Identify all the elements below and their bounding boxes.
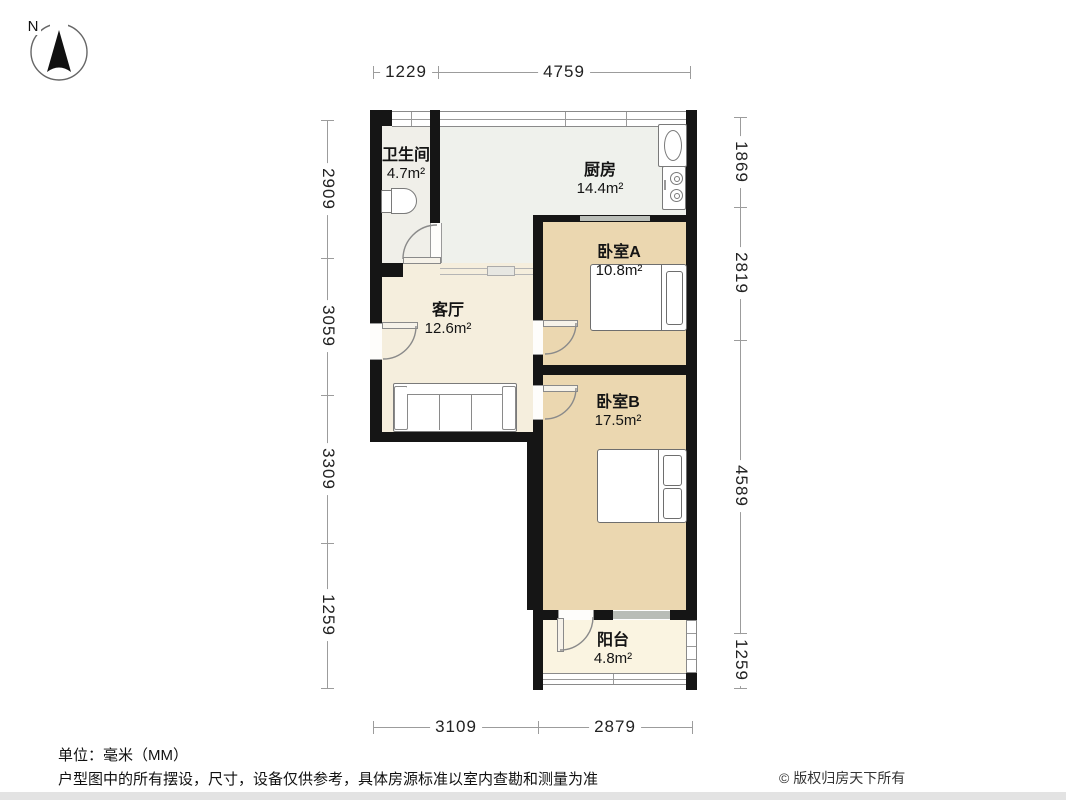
- wall-left-lower: [370, 358, 382, 442]
- floor-kitchen-lower: [440, 215, 533, 270]
- room-name: 卫生间: [351, 146, 461, 165]
- wall-living-bottom: [370, 432, 543, 442]
- door-bedroom-b-opening: [533, 385, 543, 420]
- floor-plan: N: [0, 0, 1066, 800]
- north-label: N: [25, 18, 41, 35]
- dim-label-left-1: 2909: [318, 163, 338, 215]
- wall-top-left-corner: [370, 110, 392, 126]
- copyright-text: © 版权归房天下所有: [779, 768, 905, 788]
- sofa-armrest-left: [394, 386, 408, 430]
- dim-tick: [321, 543, 334, 544]
- dim-tick: [734, 688, 747, 689]
- dim-tick: [373, 66, 374, 79]
- sofa-armrest-right: [502, 386, 516, 430]
- door-bedroom-b-leaf: [543, 385, 578, 392]
- wall-interior-vertical-1: [533, 215, 543, 320]
- dim-tick: [734, 207, 747, 208]
- room-area: 4.7m²: [351, 165, 461, 183]
- window-pane-line: [687, 659, 696, 660]
- room-area: 14.4m²: [545, 180, 655, 198]
- wall-bedroom-b-left: [527, 442, 543, 610]
- wall-bedroom-divider: [543, 365, 686, 375]
- threshold-step: [487, 266, 515, 276]
- wall-interior-vertical-2: [533, 353, 543, 385]
- dim-label-right-1: 1869: [731, 136, 751, 188]
- dim-label-top-1: 1229: [380, 62, 432, 82]
- dim-tick: [321, 688, 334, 689]
- sofa-seat-divider: [471, 395, 472, 430]
- wall-top-pier: [430, 110, 440, 126]
- room-name: 卧室A: [564, 243, 674, 262]
- sofa-seat-divider: [439, 395, 440, 430]
- room-area: 12.6m²: [393, 320, 503, 338]
- disclaimer-text: 户型图中的所有摆设，尺寸，设备仅供参考，具体房源标准以室内查勘和测量为准: [58, 768, 598, 789]
- window-balcony-bottom: [543, 673, 686, 685]
- room-label-kitchen: 厨房 14.4m²: [545, 161, 655, 198]
- dim-line-right: [740, 117, 741, 688]
- room-label-bathroom: 卫生间 4.7m²: [351, 146, 461, 183]
- sink-icon: [658, 124, 687, 167]
- window-kitchen-top: [440, 111, 686, 127]
- bed-b-divider: [658, 450, 659, 522]
- wall-balcony-right-stub: [686, 673, 697, 690]
- room-area: 17.5m²: [563, 412, 673, 430]
- dim-label-bottom-1: 3109: [430, 717, 482, 737]
- stove-burner-dot: [674, 176, 680, 182]
- room-area: 4.8m²: [558, 650, 668, 668]
- window-pane-line: [687, 633, 696, 634]
- room-name: 卧室B: [563, 393, 673, 412]
- dim-tick: [734, 340, 747, 341]
- bottom-divider: [0, 792, 1066, 800]
- sink-basin: [664, 130, 682, 161]
- window-mullion: [613, 674, 614, 684]
- stove-icon: [662, 166, 686, 210]
- bed-b-pillow: [663, 455, 682, 486]
- sofa-icon: [393, 383, 517, 432]
- dim-label-right-4: 1259: [731, 634, 751, 686]
- window-pane-line: [687, 646, 696, 647]
- wall-bedroom-b-bottom-2: [592, 610, 613, 620]
- window-bedroom-b-balcony: [613, 611, 670, 619]
- room-label-bedroom-b: 卧室B 17.5m²: [563, 393, 673, 430]
- room-label-living: 客厅 12.6m²: [393, 301, 503, 338]
- window-bedroom-a-top: [580, 216, 650, 221]
- room-name: 客厅: [393, 301, 503, 320]
- dim-label-left-4: 1259: [318, 589, 338, 641]
- door-bathroom-leaf: [403, 257, 441, 264]
- dim-tick: [373, 721, 374, 734]
- dim-tick: [690, 66, 691, 79]
- dim-label-left-2: 3059: [318, 300, 338, 352]
- dim-tick: [321, 395, 334, 396]
- room-name: 阳台: [558, 631, 668, 650]
- window-mullion: [626, 112, 627, 126]
- wall-top-right-corner: [686, 110, 697, 126]
- window-mullion: [565, 112, 566, 126]
- door-bedroom-a-leaf: [543, 320, 578, 327]
- dim-tick: [692, 721, 693, 734]
- unit-note: 单位：毫米（MM）: [58, 744, 188, 765]
- wall-bedroom-b-bottom-3: [670, 610, 696, 620]
- sofa-back: [407, 384, 502, 395]
- wall-bedroom-b-bottom-1: [543, 610, 558, 620]
- dim-tick: [321, 120, 334, 121]
- dim-label-top-2: 4759: [538, 62, 590, 82]
- dim-tick: [438, 66, 439, 79]
- dim-tick: [321, 258, 334, 259]
- door-bedroom-a-opening: [533, 320, 543, 355]
- dim-label-left-3: 3309: [318, 443, 338, 495]
- room-area: 10.8m²: [564, 262, 674, 280]
- window-mullion: [411, 112, 412, 126]
- dim-label-bottom-2: 2879: [589, 717, 641, 737]
- dim-tick: [734, 117, 747, 118]
- bed-b-pillow: [663, 488, 682, 519]
- door-entrance-opening: [370, 323, 382, 360]
- stove-knob: [664, 180, 666, 190]
- dim-label-right-3: 4589: [731, 460, 751, 512]
- stove-burner-dot: [674, 193, 680, 199]
- dim-tick: [538, 721, 539, 734]
- room-label-balcony: 阳台 4.8m²: [558, 631, 668, 668]
- toilet-bowl-icon: [391, 188, 417, 214]
- room-label-bedroom-a: 卧室A 10.8m²: [564, 243, 674, 280]
- window-bathroom-top: [392, 111, 430, 127]
- wall-right-exterior: [686, 126, 697, 620]
- window-balcony-right: [686, 620, 697, 673]
- dim-label-right-2: 2819: [731, 247, 751, 299]
- dim-line-bottom: [373, 727, 692, 728]
- wall-bathroom-bottom: [370, 263, 403, 277]
- room-name: 厨房: [545, 161, 655, 180]
- bed-b-icon: [597, 449, 687, 523]
- wall-balcony-left: [533, 610, 543, 690]
